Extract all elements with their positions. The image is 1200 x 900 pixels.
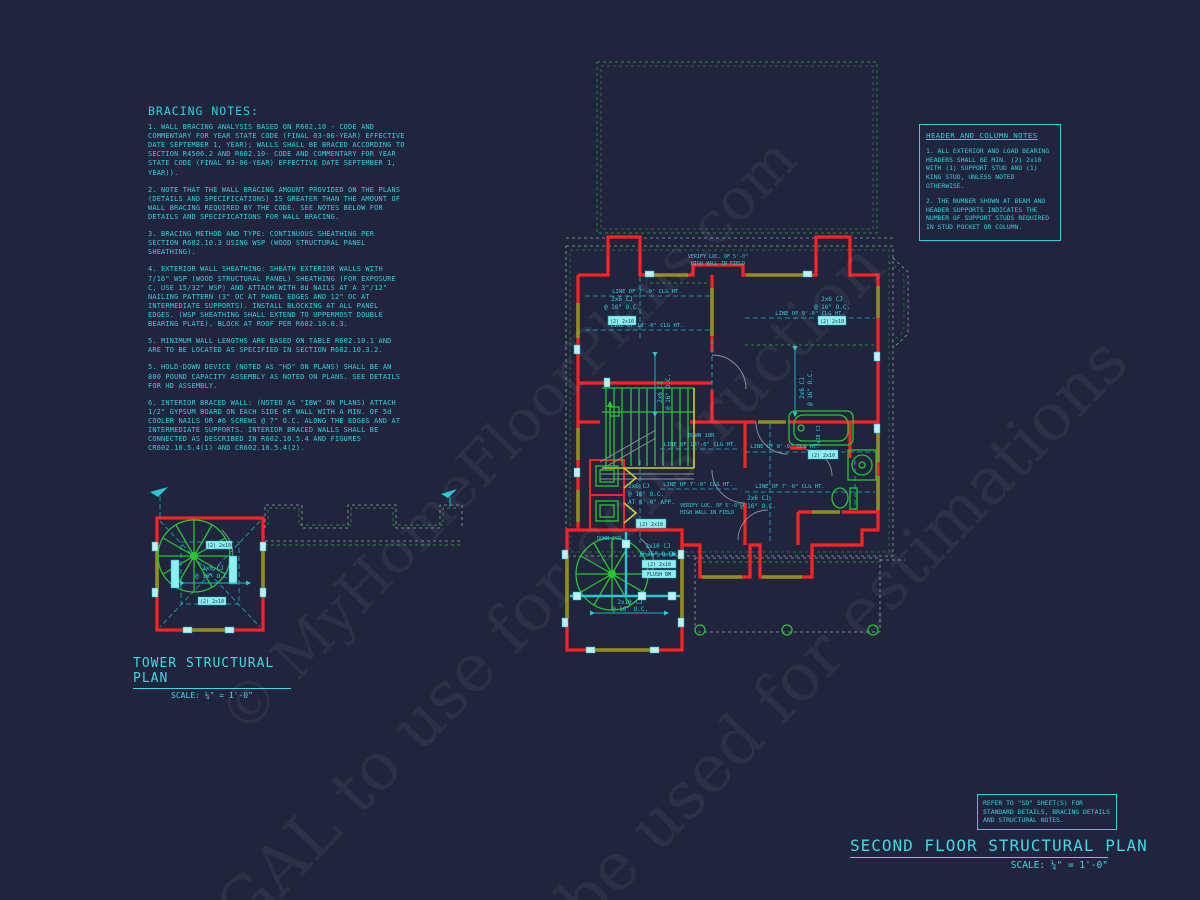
svg-text:2x6 CJ: 2x6 CJ [628, 483, 650, 490]
svg-text:VERIFY LOC. OF 5'-0": VERIFY LOC. OF 5'-0" [688, 254, 748, 260]
svg-text:@ 16" O.C.: @ 16" O.C. [628, 491, 664, 498]
svg-text:(2) 2x10: (2) 2x10 [647, 562, 671, 568]
svg-text:LINE OF 7'-0" CLG HT.: LINE OF 7'-0" CLG HT. [612, 289, 682, 295]
svg-text:2x10 CJ: 2x10 CJ [816, 425, 822, 446]
svg-text:LINE OF 8'-0" CLG HT.: LINE OF 8'-0" CLG HT. [750, 444, 820, 450]
svg-text:2x6 CJ: 2x6 CJ [202, 565, 224, 572]
bracing-notes-title: BRACING NOTES: [148, 104, 408, 118]
svg-text:LINE OF 7'-0" CLG HT.: LINE OF 7'-0" CLG HT. [663, 482, 733, 488]
svg-text:LINE OF 7'-0" CLG HT.: LINE OF 7'-0" CLG HT. [755, 484, 825, 490]
svg-text:2x6 CJ: 2x6 CJ [611, 296, 633, 303]
svg-text:(2) 2x10: (2) 2x10 [811, 453, 835, 459]
tower-plan-title-block: TOWER STRUCTURAL PLAN SCALE: ¼" = 1'-0" [133, 656, 291, 700]
svg-text:HIGH WALL IN FIELD: HIGH WALL IN FIELD [680, 510, 734, 516]
header-column-notes-title: HEADER AND COLUMN NOTES [926, 131, 1054, 140]
svg-text:DOWN 18R: DOWN 18R [688, 433, 715, 439]
bathroom-fixtures [789, 411, 876, 509]
svg-text:@ 16" O.C.: @ 16" O.C. [640, 551, 676, 558]
tower-plan-scale: SCALE: ¼" = 1'-0" [133, 691, 291, 700]
refer-note-box: REFER TO "SD" SHEET(S) FOR STANDARD DETA… [977, 794, 1117, 830]
attic-access-chevron [624, 503, 636, 523]
svg-text:LINE OF 10'-0" CLG HT.: LINE OF 10'-0" CLG HT. [664, 442, 737, 448]
svg-text:2x10 CJ: 2x10 CJ [617, 599, 642, 606]
header-column-note-2: 2. THE NUMBER SHOWN AT BEAM AND HEADER S… [926, 197, 1054, 232]
svg-text:(2) 2x10: (2) 2x10 [639, 522, 663, 528]
bracing-note-2: 2. NOTE THAT THE WALL BRACING AMOUNT PRO… [148, 186, 408, 222]
second-floor-scale: SCALE: ¼" = 1'-0" [850, 860, 1108, 871]
svg-text:@ 16" O.C.: @ 16" O.C. [814, 304, 850, 311]
svg-text:VERIFY LOC. OF 5'-0": VERIFY LOC. OF 5'-0" [680, 503, 740, 509]
svg-text:2x10 CJ: 2x10 CJ [645, 543, 670, 550]
bracing-note-4: 4. EXTERIOR WALL SHEATHING: SHEATH EXTER… [148, 265, 408, 329]
svg-text:@ 16" O.C.: @ 16" O.C. [195, 573, 231, 580]
bracing-note-5: 5. MINIMUM WALL LENGTHS ARE BASED ON TAB… [148, 337, 408, 355]
bracing-note-6: 5. HOLD-DOWN DEVICE (NOTED AS "HD" ON PL… [148, 363, 408, 390]
cad-sheet: { "watermark": { "line1": "© MyHomeFloor… [0, 0, 1200, 900]
svg-text:2x6 CJ: 2x6 CJ [799, 377, 806, 399]
connector-outline-dashed [265, 489, 462, 545]
bracing-note-1: 1. WALL BRACING ANALYSIS BASED ON R602.1… [148, 123, 408, 178]
second-floor-title: SECOND FLOOR STRUCTURAL PLAN [850, 836, 1108, 858]
svg-text:DOWN 15R: DOWN 15R [597, 536, 622, 542]
bracing-note-3: 3. BRACING METHOD AND TYPE: CONTINUOUS S… [148, 230, 408, 257]
svg-text:2x6 CJ: 2x6 CJ [657, 381, 664, 403]
svg-text:2x6 CJ: 2x6 CJ [747, 495, 769, 502]
porch-outline-dashed [695, 558, 905, 635]
svg-text:@ 16" O.C.: @ 16" O.C. [807, 370, 814, 406]
svg-text:@ 16" O.C.: @ 16" O.C. [604, 304, 640, 311]
second-floor-title-block: SECOND FLOOR STRUCTURAL PLAN SCALE: ¼" =… [850, 836, 1108, 871]
svg-text:@ 16" O.C.: @ 16" O.C. [740, 503, 776, 510]
svg-text:(2) 2x10: (2) 2x10 [200, 599, 224, 605]
tower-spiral [158, 520, 233, 592]
svg-text:(2) 2x10: (2) 2x10 [820, 319, 844, 325]
svg-text:2x6 CJ: 2x6 CJ [821, 296, 843, 303]
header-column-notes: HEADER AND COLUMN NOTES 1. ALL EXTERIOR … [919, 124, 1061, 241]
svg-text:HIGH WALL IN FIELD: HIGH WALL IN FIELD [691, 261, 745, 267]
north-arrow-icon [150, 487, 168, 497]
svg-text:@ 16" O.C.: @ 16" O.C. [612, 606, 648, 613]
svg-text:AT 8'-0" APP.: AT 8'-0" APP. [628, 499, 675, 506]
svg-text:(2) 2x10: (2) 2x10 [207, 543, 231, 549]
bracing-note-7: 6. INTERIOR BRACED WALL: (NOTED AS "IBW"… [148, 399, 408, 454]
tower-plan: (2) 2x10 (2) 2x10 2x6 CJ @ 16" O.C. [150, 487, 266, 633]
north-arrow-icon [441, 489, 457, 498]
svg-text:@ 16" O.C.: @ 16" O.C. [665, 374, 672, 410]
tower-plan-title: TOWER STRUCTURAL PLAN [133, 656, 291, 689]
header-column-note-1: 1. ALL EXTERIOR AND LOAD BEARING HEADERS… [926, 147, 1054, 190]
tower-north-arrow [150, 487, 168, 518]
svg-text:(2) 2x10: (2) 2x10 [610, 319, 634, 325]
toilet [832, 488, 848, 508]
svg-text:FLUSH BM: FLUSH BM [647, 572, 671, 578]
bracing-notes: BRACING NOTES: 1. WALL BRACING ANALYSIS … [148, 104, 408, 461]
